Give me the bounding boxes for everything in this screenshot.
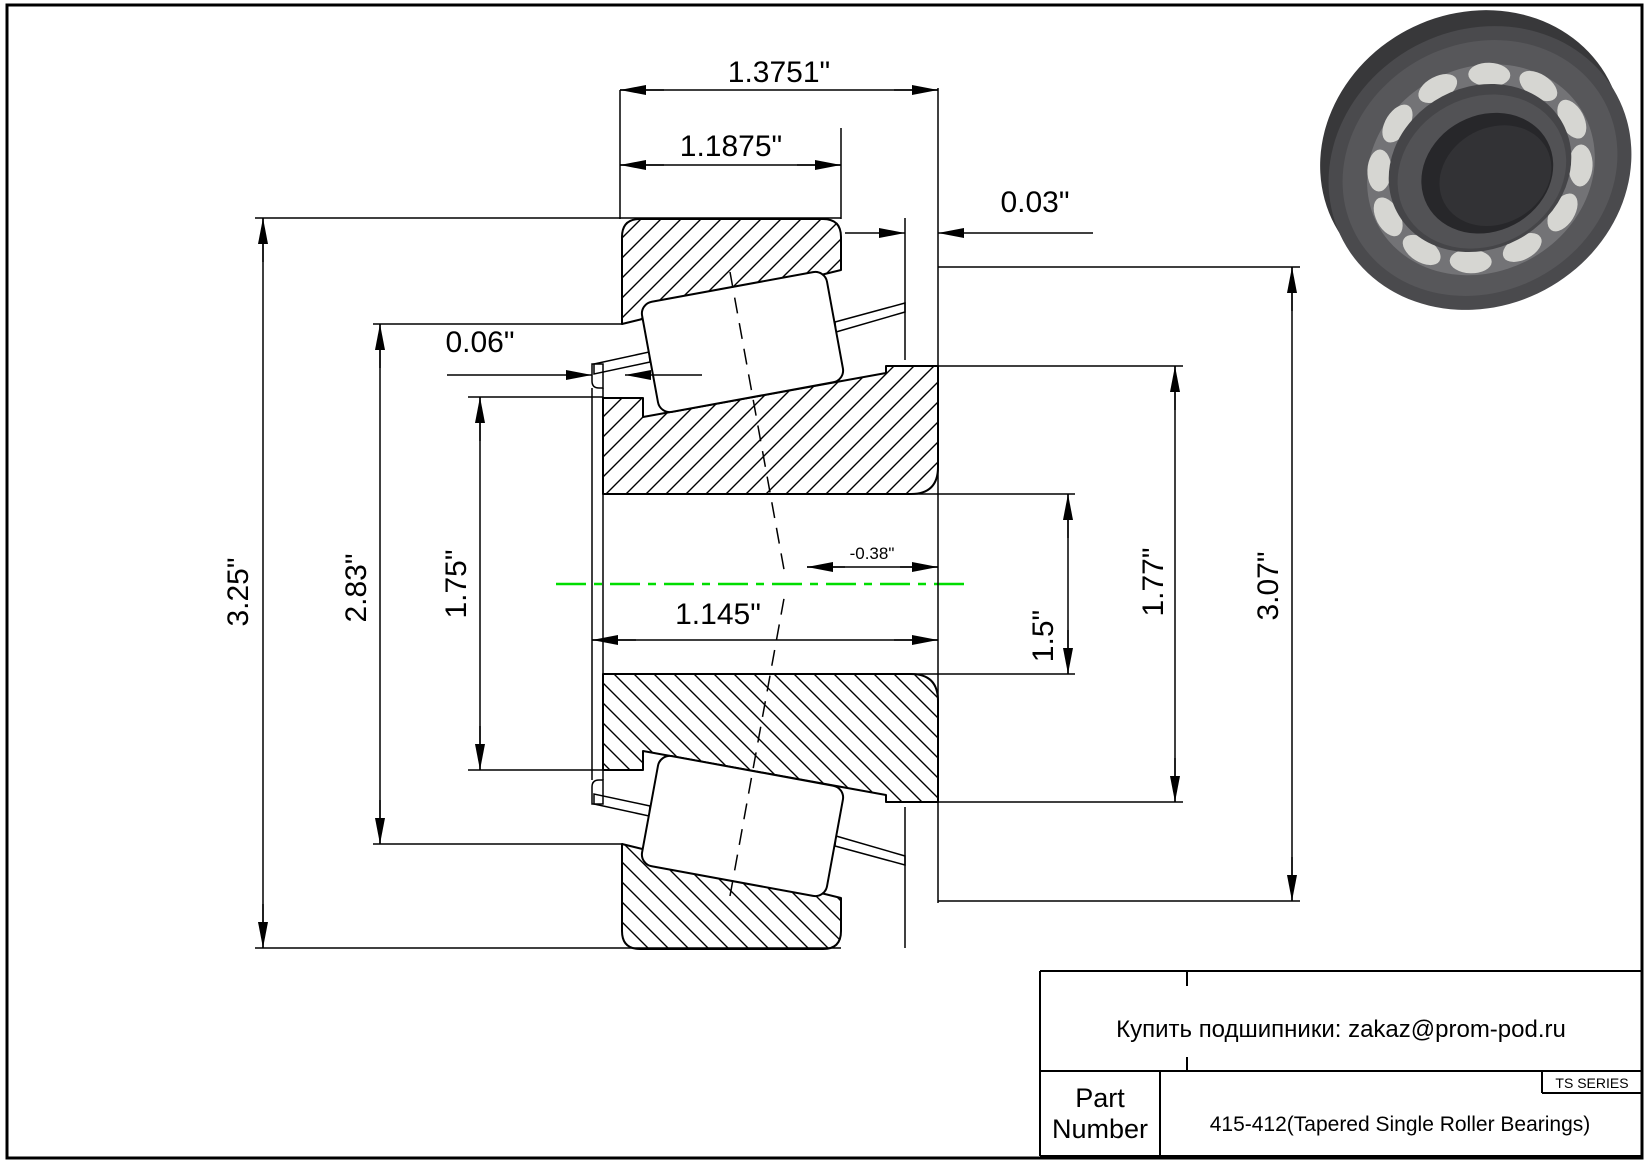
- part-number-value: 415-412(Tapered Single Roller Bearings): [1210, 1113, 1591, 1136]
- contact-text: Купить подшипники: zakaz@prom-pod.ru: [1116, 1016, 1566, 1043]
- dim-rib-diameter: 1.77": [1137, 366, 1175, 802]
- dim-label-cone-width: 1.145": [675, 598, 761, 631]
- cage-strip-top-right: [835, 303, 905, 332]
- dim-label-cup-width: 1.1875": [680, 130, 782, 163]
- dim-label-cage-standout: 0.06": [445, 326, 514, 359]
- dim-effective-center: -0.38": [807, 544, 938, 567]
- cage-strip-bottom-right: [835, 836, 905, 865]
- dim-label-outer-diameter: 3.25": [222, 557, 255, 626]
- dim-label-overall-width: 1.3751": [728, 56, 830, 89]
- dim-label-flange-diameter: 2.83": [340, 553, 373, 622]
- series-label: TS SERIES: [1555, 1075, 1628, 1091]
- technical-drawing-svg: 1.3751" 1.1875" 0.03" 0.06" 1.145" -0.38…: [0, 0, 1649, 1167]
- dim-flange-diameter: 2.83": [340, 324, 380, 844]
- dim-label-race-diameter: 1.75": [440, 549, 473, 618]
- dim-outer-diameter: 3.25": [222, 218, 263, 948]
- dim-bore-diameter: 1.5": [1027, 494, 1068, 674]
- dim-label-cup-standout: 0.03": [1000, 186, 1069, 219]
- dim-cone-width: 1.145": [592, 598, 938, 640]
- dim-race-diameter: 1.75": [440, 397, 480, 770]
- dim-label-rib-diameter: 1.77": [1137, 547, 1170, 616]
- dim-label-cup-diameter: 3.07": [1252, 551, 1285, 620]
- part-number-label-line2: Number: [1052, 1114, 1148, 1144]
- dim-cup-standout: 0.03": [845, 186, 1093, 233]
- part-number-label-line1: Part: [1075, 1083, 1125, 1113]
- dim-cup-diameter: 3.07": [1252, 267, 1292, 901]
- drawing-page: 1.3751" 1.1875" 0.03" 0.06" 1.145" -0.38…: [0, 0, 1649, 1167]
- dim-overall-width: 1.3751": [620, 56, 938, 90]
- dim-label-bore-diameter: 1.5": [1027, 610, 1060, 662]
- dim-label-effective-center: -0.38": [850, 544, 895, 563]
- dim-cup-width: 1.1875": [620, 130, 841, 165]
- bearing-photo: [1270, 0, 1649, 363]
